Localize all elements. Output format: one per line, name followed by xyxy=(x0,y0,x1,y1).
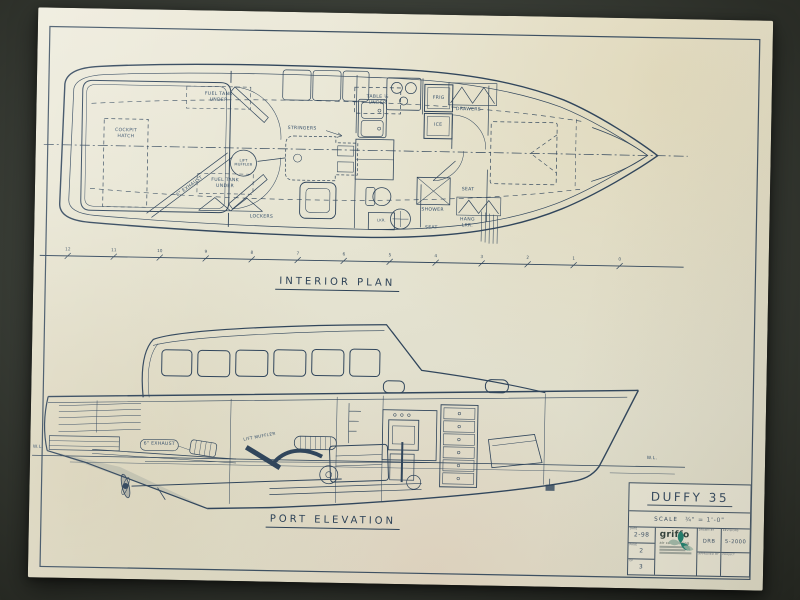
station-number: 3 xyxy=(480,254,483,259)
door-leaf-port xyxy=(229,174,268,210)
stern-platform xyxy=(49,436,119,451)
transom xyxy=(44,397,48,451)
muffler-ribs xyxy=(300,436,330,450)
drawer xyxy=(444,408,475,420)
transducer xyxy=(546,485,555,491)
drawer-knob xyxy=(458,412,461,415)
engine-detail xyxy=(338,146,354,156)
drawer xyxy=(443,447,474,459)
counter-divider xyxy=(356,159,394,160)
station-number: 1 xyxy=(572,256,575,261)
station-number: 10 xyxy=(157,248,162,253)
fwd-door-swing xyxy=(452,115,487,150)
engine-lines xyxy=(336,454,382,466)
revisions-cell: REVISIONS 5-2000 xyxy=(721,529,749,553)
station-number: 2 xyxy=(526,255,529,260)
drawer xyxy=(444,421,475,433)
revisions-label: REVISIONS xyxy=(723,529,739,532)
oven-knob xyxy=(394,414,397,417)
approved-cell: APPROVED BY xyxy=(697,552,721,575)
coupler-ribs xyxy=(194,440,211,456)
shower-x xyxy=(417,177,450,205)
station-number: 6 xyxy=(342,251,345,256)
title-block: DUFFY 35 SCALE ¾" = 1'-0" DATE 2-98 PAGE… xyxy=(627,482,752,577)
waterline-secondary xyxy=(70,462,675,474)
pages-total: 3 xyxy=(639,563,643,570)
project-cell: PROJECT xyxy=(721,553,749,577)
ice-box-inner xyxy=(427,116,449,135)
oven-door xyxy=(392,426,414,444)
station-number: 9 xyxy=(204,249,207,254)
engine-flywheel xyxy=(320,466,338,484)
interior-plan-title: INTERIOR PLAN xyxy=(275,276,399,292)
waterline-right-label: W.L. xyxy=(647,456,658,461)
interior-plan-drawing xyxy=(40,61,690,270)
engine-detail xyxy=(337,162,353,172)
station-number: 12 xyxy=(65,246,70,251)
project-label: PROJECT xyxy=(722,553,735,556)
exhaust-hose xyxy=(273,450,322,464)
sink-drain xyxy=(378,127,381,130)
page-cell: PAGE 2 xyxy=(628,543,654,559)
scale-value: ¾" = 1'-0" xyxy=(685,516,725,524)
exhaust-run-plan xyxy=(146,151,232,219)
exhaust-label-bubble xyxy=(140,439,178,451)
approved-project-row: APPROVED BY PROJECT xyxy=(697,552,749,576)
company-logo-cell: griffo air conditioning xyxy=(655,528,698,576)
station-number: 4 xyxy=(434,253,437,258)
centerline xyxy=(44,144,688,156)
aft-cabin-joinery xyxy=(59,400,142,433)
cabin-window xyxy=(312,349,344,376)
cabin-window xyxy=(274,350,306,377)
sink-drain xyxy=(378,109,381,112)
stove-burner xyxy=(405,83,416,94)
page-value: 2 xyxy=(639,547,643,554)
stringer-line-stbd xyxy=(91,97,581,122)
exhaust-leader xyxy=(178,446,190,450)
station-number: 8 xyxy=(250,250,253,255)
station-number: 0 xyxy=(618,256,621,261)
drawn-revisions-row: DRAWN BY DRB REVISIONS 5-2000 xyxy=(697,528,749,553)
blueprint-sheet: COCKPIT HATCH 6" EXHAUST FUEL TANK UNDER… xyxy=(28,7,773,590)
revisions-value: 5-2000 xyxy=(725,538,746,544)
seat-zigzag xyxy=(459,200,499,214)
muffler-pipe xyxy=(257,157,285,162)
aft-face-inner xyxy=(148,343,158,397)
chair-cushion xyxy=(306,188,330,212)
settee-cushion-line xyxy=(492,440,536,447)
drawers-zigzag xyxy=(451,87,495,104)
propeller-logo-icon xyxy=(667,530,695,557)
engine-outline-plan xyxy=(285,136,358,181)
port-elevation-title: PORT ELEVATION xyxy=(266,514,401,530)
roof-eyebrow xyxy=(153,326,384,349)
door-leaf-stbd xyxy=(230,87,269,123)
sheer-line-inner xyxy=(48,387,627,414)
oven-knob xyxy=(408,414,411,417)
drawer xyxy=(443,473,474,485)
engine-pulley xyxy=(293,154,301,162)
station-ruler xyxy=(40,255,684,267)
station-number: 11 xyxy=(111,247,116,252)
date-page-column: DATE 2-98 PAGE 2 OF 3 xyxy=(628,527,656,574)
stringers-arrow xyxy=(326,131,342,138)
date-label: DATE xyxy=(630,527,638,530)
lift-muffler-circle xyxy=(230,150,256,176)
diagonal-hose xyxy=(246,447,280,468)
drawer-knob xyxy=(457,464,460,467)
hull-plan-outline xyxy=(59,61,659,242)
drawn-by-column: DRAWN BY DRB REVISIONS 5-2000 APPROVED B… xyxy=(697,528,750,576)
bulkheads-plan xyxy=(354,75,489,230)
drawn-by-value: DRB xyxy=(703,538,716,544)
date-value: 2-98 xyxy=(634,531,650,538)
cabin-window xyxy=(162,350,192,377)
sink-basin xyxy=(361,102,383,118)
propeller-hub xyxy=(123,483,128,488)
settee-cushion xyxy=(343,71,370,101)
title-block-name-row: DUFFY 35 xyxy=(629,483,750,513)
deck-inner-line xyxy=(68,70,649,234)
lockers-zigzag xyxy=(199,197,263,211)
of-label: OF xyxy=(629,559,633,562)
frig-box-inner xyxy=(427,87,449,108)
sink-basin xyxy=(361,120,383,136)
page-label: PAGE xyxy=(630,543,638,546)
photo-background: { "colors": { "ink": "#31465c", "paper":… xyxy=(0,0,800,600)
fwd-settee xyxy=(488,434,543,469)
boat-name: DUFFY 35 xyxy=(648,489,733,507)
keel-line xyxy=(207,474,574,515)
fuel-tank-stbd-outline xyxy=(186,86,250,109)
chair xyxy=(299,182,336,219)
drawer xyxy=(443,460,474,472)
oven xyxy=(388,420,419,451)
oven-knob xyxy=(401,414,404,417)
drawer-knob xyxy=(458,425,461,428)
engine-beds xyxy=(269,481,421,498)
toilet xyxy=(373,187,391,205)
drawn-by-label: DRAWN BY xyxy=(699,529,715,532)
drawn-by-cell: DRAWN BY DRB xyxy=(697,528,721,551)
door-swing-stbd xyxy=(234,87,282,140)
portlight xyxy=(485,380,508,393)
settee-cushion xyxy=(313,70,342,101)
cockpit-hatch-outline xyxy=(103,119,149,208)
drawer-knob xyxy=(457,477,460,480)
scale-label: SCALE xyxy=(654,516,678,522)
drawer xyxy=(443,434,474,446)
date-cell: DATE 2-98 xyxy=(629,527,655,543)
station-number: 7 xyxy=(296,251,299,256)
cabin-window xyxy=(350,349,380,377)
portlight xyxy=(383,381,404,393)
drawers-outline xyxy=(449,83,497,106)
approved-label: APPROVED BY xyxy=(698,553,718,556)
stove xyxy=(386,78,421,111)
vberth-outline xyxy=(490,122,557,185)
station-number: 5 xyxy=(388,252,391,257)
drawer-knob xyxy=(458,438,461,441)
cabin-window xyxy=(236,350,268,377)
companionway-steps xyxy=(348,403,361,443)
toilet-tank xyxy=(366,187,375,205)
drawer-stack xyxy=(440,405,478,488)
drawer-knob xyxy=(457,451,460,454)
ice-box xyxy=(424,113,452,139)
cabin-window xyxy=(198,350,230,377)
exhaust-coupler xyxy=(189,439,217,457)
galley-cabinet xyxy=(382,410,437,461)
stem xyxy=(574,389,639,482)
platform-slats xyxy=(49,441,119,447)
port-elevation-drawing xyxy=(31,318,687,517)
engine-pipe xyxy=(402,442,403,482)
engine-flywheel-hub xyxy=(326,472,332,478)
waterline-left-label: W.L. xyxy=(33,445,44,450)
of-cell: OF 3 xyxy=(628,559,654,574)
title-block-grid: DATE 2-98 PAGE 2 OF 3 griffo air conditi… xyxy=(628,527,750,576)
engine-block xyxy=(329,444,388,482)
